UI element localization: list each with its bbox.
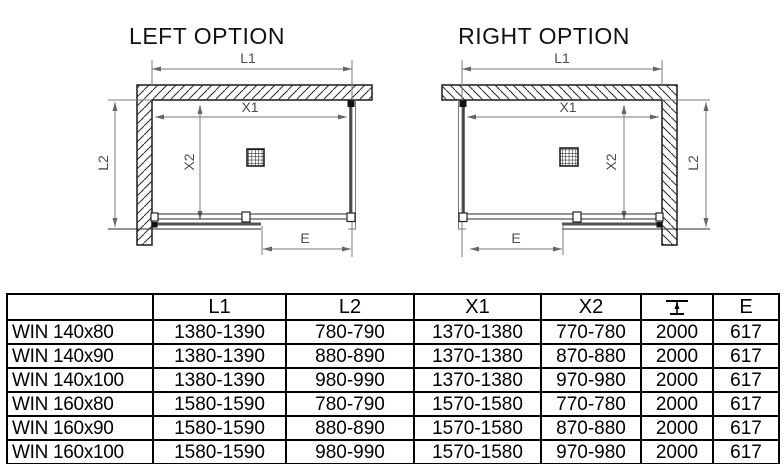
arrow-right-icon (653, 67, 662, 72)
arrow-up-icon (198, 105, 203, 114)
arrow-right-icon (338, 115, 347, 120)
cell-l2: 880-890 (286, 416, 414, 440)
right-option-diagram: RIGHT OPTION L1 X1 X2 (392, 0, 784, 290)
cell-e: 617 (713, 344, 779, 368)
door-handle (242, 212, 250, 222)
table-row: WIN 160x80 1580-1590 780-790 1570-1580 7… (7, 392, 779, 416)
height-dimension-icon (663, 299, 691, 316)
cell-l1: 1380-1390 (153, 320, 286, 344)
dim-label-x2: X2 (181, 153, 197, 170)
table-row: WIN 140x100 1380-1390 980-990 1370-1380 … (7, 368, 779, 392)
arrow-down-icon (704, 218, 709, 227)
wall-bracket (657, 222, 663, 228)
cell-e: 617 (713, 392, 779, 416)
cell-model: WIN 140x80 (7, 320, 153, 344)
header-x1: X1 (414, 294, 541, 320)
cell-model: WIN 160x90 (7, 416, 153, 440)
panel-end-cap (459, 213, 467, 222)
arrow-right-icon (650, 115, 659, 120)
cell-l1: 1580-1590 (153, 392, 286, 416)
cell-e: 617 (713, 368, 779, 392)
dim-x2: X2 (181, 105, 203, 220)
cell-l2: 780-790 (286, 392, 414, 416)
dim-label-l1: L1 (240, 50, 256, 66)
cell-l1: 1580-1590 (153, 440, 286, 464)
cell-height: 2000 (641, 320, 713, 344)
cell-l2: 980-990 (286, 368, 414, 392)
cell-x1: 1570-1580 (414, 416, 541, 440)
cell-height: 2000 (641, 368, 713, 392)
cell-model: WIN 140x90 (7, 344, 153, 368)
door-handle (573, 212, 581, 222)
cell-height: 2000 (641, 440, 713, 464)
wall-fitting (348, 101, 355, 108)
header-height (641, 294, 713, 320)
cell-x2: 970-980 (541, 440, 641, 464)
dimensions-table: L1 L2 X1 X2 E WIN 140x80 1380-1390 (6, 293, 780, 464)
arrow-right-icon (342, 247, 351, 252)
dim-label-l2: L2 (95, 155, 111, 171)
header-model (7, 294, 153, 320)
arrow-left-icon (462, 67, 471, 72)
fixed-glass-panel (347, 100, 356, 229)
header-e: E (713, 294, 779, 320)
cell-x1: 1570-1580 (414, 440, 541, 464)
cell-e: 617 (713, 416, 779, 440)
cell-e: 617 (713, 440, 779, 464)
door-track (151, 212, 355, 228)
table-header-row: L1 L2 X1 X2 E (7, 294, 779, 320)
dim-x2: X2 (603, 105, 627, 220)
arrow-left-icon (470, 247, 479, 252)
cell-x1: 1570-1580 (414, 392, 541, 416)
cell-x2: 770-780 (541, 320, 641, 344)
arrow-up-icon (113, 102, 118, 111)
cell-x2: 870-880 (541, 344, 641, 368)
cell-model: WIN 140x100 (7, 368, 153, 392)
arrow-left-icon (155, 115, 164, 120)
header-x2: X2 (541, 294, 641, 320)
arrow-left-icon (152, 67, 161, 72)
dim-e: E (262, 226, 351, 255)
arrow-left-icon (467, 115, 476, 120)
arrow-left-icon (263, 247, 272, 252)
cell-l2: 980-990 (286, 440, 414, 464)
wall-fitting (460, 101, 467, 108)
cell-model: WIN 160x80 (7, 392, 153, 416)
dim-e: E (470, 226, 563, 255)
arrow-up-icon (622, 105, 627, 114)
dim-label-l1: L1 (554, 50, 570, 66)
cell-l2: 880-890 (286, 344, 414, 368)
dim-x1: X1 (155, 99, 347, 120)
dim-x1: X1 (467, 99, 659, 120)
cell-x2: 870-880 (541, 416, 641, 440)
wall-bracket (152, 222, 158, 228)
dim-label-e: E (511, 230, 520, 246)
left-option-title: LEFT OPTION (129, 23, 285, 49)
cell-x1: 1370-1380 (414, 368, 541, 392)
table-row: WIN 160x100 1580-1590 980-990 1570-1580 … (7, 440, 779, 464)
cell-model: WIN 160x100 (7, 440, 153, 464)
arrow-up-icon (704, 102, 709, 111)
cell-l2: 780-790 (286, 320, 414, 344)
cell-l1: 1380-1390 (153, 344, 286, 368)
left-option-diagram: LEFT OPTION L1 X1 X2 (0, 0, 392, 290)
cell-x2: 970-980 (541, 368, 641, 392)
wall-profile (151, 213, 158, 221)
arrow-right-icon (343, 67, 352, 72)
cell-x1: 1370-1380 (414, 344, 541, 368)
cell-x2: 770-780 (541, 392, 641, 416)
cell-e: 617 (713, 320, 779, 344)
table-row: WIN 140x80 1380-1390 780-790 1370-1380 7… (7, 320, 779, 344)
dim-label-x2: X2 (603, 153, 619, 170)
dim-label-x1: X1 (559, 99, 576, 115)
table-row: WIN 140x90 1380-1390 880-890 1370-1380 8… (7, 344, 779, 368)
dim-label-x1: X1 (241, 99, 258, 115)
drain-grate-icon (560, 148, 578, 166)
arrow-down-icon (113, 218, 118, 227)
cell-height: 2000 (641, 344, 713, 368)
cell-l1: 1380-1390 (153, 368, 286, 392)
table-row: WIN 160x90 1580-1590 880-890 1570-1580 8… (7, 416, 779, 440)
panel-end-cap (347, 213, 355, 222)
drain-grate-icon (247, 149, 264, 166)
page: LEFT OPTION L1 X1 X2 (0, 0, 784, 464)
cell-x1: 1370-1380 (414, 320, 541, 344)
cell-height: 2000 (641, 392, 713, 416)
cell-height: 2000 (641, 416, 713, 440)
header-l2: L2 (286, 294, 414, 320)
dim-label-l2: L2 (685, 155, 701, 171)
dim-label-e: E (300, 230, 309, 246)
arrow-right-icon (553, 247, 562, 252)
door-track (459, 212, 663, 228)
right-option-title: RIGHT OPTION (458, 23, 630, 49)
header-l1: L1 (153, 294, 286, 320)
cell-l1: 1580-1590 (153, 416, 286, 440)
wall-profile (656, 213, 663, 221)
fixed-glass-panel (458, 100, 467, 229)
